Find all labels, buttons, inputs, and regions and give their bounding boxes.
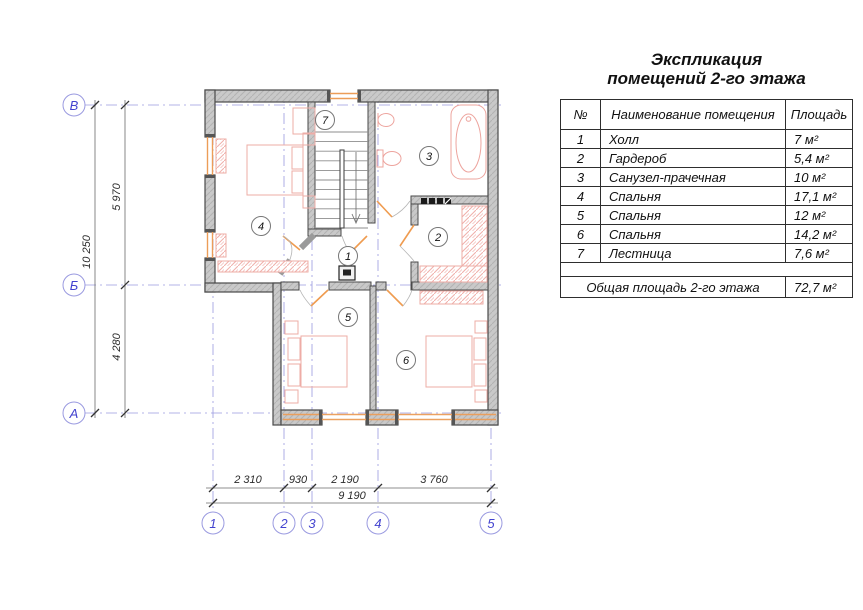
wardrobe-hatch-room6 [420,291,483,304]
door-room6 [387,290,412,306]
dim-2310: 2 310 [233,474,262,486]
wall-left-pier-2 [205,175,215,232]
axis-bubble-a: А [63,402,85,424]
sheet-title: Экспликация помещений 2-го этажа [558,50,855,88]
row-num: 1 [561,130,601,148]
bed-room6 [426,321,487,402]
axis-label-1: 1 [209,516,216,531]
table-empty-row [561,262,852,276]
wall-bottom-pier-2 [366,410,398,425]
window-left-1 [208,137,213,175]
room-bubble-2: 2 [429,228,448,247]
door-room5 [300,290,328,306]
row-name: Спальня [601,206,786,224]
room-number-6: 6 [403,355,410,367]
wall-top-left [205,90,330,102]
wall-hall-bottom-a [281,282,299,290]
toilet [377,150,401,167]
window-left-2 [208,232,213,258]
row-area: 17,1 м² [786,187,852,205]
stair-direction-arrow [352,152,360,223]
dim-9190: 9 190 [338,490,366,502]
floor-plan-canvas: 1 2 3 4 5 6 7 В [0,0,863,610]
wardrobe-hatch-room2 [420,206,487,282]
radiators-room4 [216,139,308,272]
axis-label-v: В [70,98,79,113]
explication-table: № Наименование помещения Площадь 1 Холл … [560,99,853,298]
room-bubble-3: 3 [420,147,439,166]
room-bubble-4: 4 [252,217,271,236]
axis-label-2: 2 [279,516,288,531]
room-bubble-6: 6 [397,351,416,370]
drawing-sheet: 1 2 3 4 5 6 7 В [0,0,863,610]
table-row: 2 Гардероб 5,4 м² [561,148,852,167]
room-number-2: 2 [434,232,441,244]
axis-label-3: 3 [308,516,316,531]
bed-room5 [285,321,347,403]
dim-3760: 3 760 [420,474,448,486]
axis-bubble-4: 4 [367,512,389,534]
total-label: Общая площадь 2-го этажа [561,277,786,297]
dim-2190: 2 190 [330,474,359,486]
axis-bubble-v: В [63,94,85,116]
room-bubble-5: 5 [339,308,358,327]
axis-bubble-b: Б [63,274,85,296]
row-name: Санузел-прачечная [601,168,786,186]
row-area: 7 м² [786,130,852,148]
door-room2 [400,225,414,261]
dim-10250: 10 250 [81,234,93,269]
bathroom-fixtures [377,105,486,179]
axis-label-a: А [69,406,79,421]
room-number-3: 3 [426,151,433,163]
wall-step [205,283,281,292]
room-number-5: 5 [345,312,352,324]
window-top [330,94,358,99]
wall-room2-left-a [411,204,418,225]
row-area: 12 м² [786,206,852,224]
axis-bubble-5: 5 [480,512,502,534]
row-num: 4 [561,187,601,205]
wall-divider-5-6 [370,286,376,410]
wall-top-right [358,90,498,102]
dim-5970: 5 970 [111,182,123,210]
stair-stringer [340,150,344,228]
bed-room4 [247,108,315,208]
table-row: 5 Спальня 12 м² [561,205,852,224]
axis-label-b: Б [70,278,79,293]
table-header-row: № Наименование помещения Площадь [561,100,852,129]
wall-bottom-pier-3 [452,410,498,425]
row-name: Гардероб [601,149,786,167]
sheet-title-line1: Экспликация [558,50,855,69]
total-area: 72,7 м² [786,277,852,297]
axis-bubble-1: 1 [202,512,224,534]
table-row: 4 Спальня 17,1 м² [561,186,852,205]
header-area: Площадь [786,100,852,129]
row-name: Лестница [601,244,786,262]
row-num: 6 [561,225,601,243]
room-bubble-1: 1 [339,247,358,266]
row-area: 14,2 м² [786,225,852,243]
table-row: 7 Лестница 7,6 м² [561,243,852,262]
wall-left-pier-1 [205,90,215,137]
wall-right [488,90,498,425]
room-number-7: 7 [322,115,329,127]
door-room3 [377,201,410,217]
row-name: Спальня [601,225,786,243]
room-bubble-7: 7 [316,111,335,130]
wall-stair-left [308,102,315,236]
wall-notch-left [273,283,281,425]
row-num: 3 [561,168,601,186]
sink [378,113,394,127]
axis-bubble-3: 3 [301,512,323,534]
table-row: 1 Холл 7 м² [561,129,852,148]
row-num: 5 [561,206,601,224]
axis-label-4: 4 [374,516,381,531]
wall-hall-bottom-b [329,282,371,290]
wall-hall-bottom-c [376,282,386,290]
dim-930: 930 [289,474,308,486]
bathtub [451,105,486,179]
room-number-4: 4 [258,221,264,233]
row-num: 2 [561,149,601,167]
wall-stair-right [368,102,375,223]
table-row: 6 Спальня 14,2 м² [561,224,852,243]
row-area: 10 м² [786,168,852,186]
table-row: 3 Санузел-прачечная 10 м² [561,167,852,186]
electrical-panel [339,266,355,280]
header-name: Наименование помещения [601,100,786,129]
row-name: Спальня [601,187,786,205]
wall-bottom-pier-1 [281,410,322,425]
axis-bubble-2: 2 [273,512,295,534]
axis-label-5: 5 [487,516,495,531]
dim-4280: 4 280 [111,332,123,360]
door-room4 [283,236,300,262]
header-num: № [561,100,601,129]
row-name: Холл [601,130,786,148]
wall-room6-top [412,282,488,290]
row-area: 7,6 м² [786,244,852,262]
room-number-1: 1 [345,251,351,263]
table-total-row: Общая площадь 2-го этажа 72,7 м² [561,276,852,297]
sheet-title-line2: помещений 2-го этажа [558,69,855,88]
row-num: 7 [561,244,601,262]
staircase [315,132,368,228]
row-area: 5,4 м² [786,149,852,167]
window-frame-caps [205,90,455,425]
